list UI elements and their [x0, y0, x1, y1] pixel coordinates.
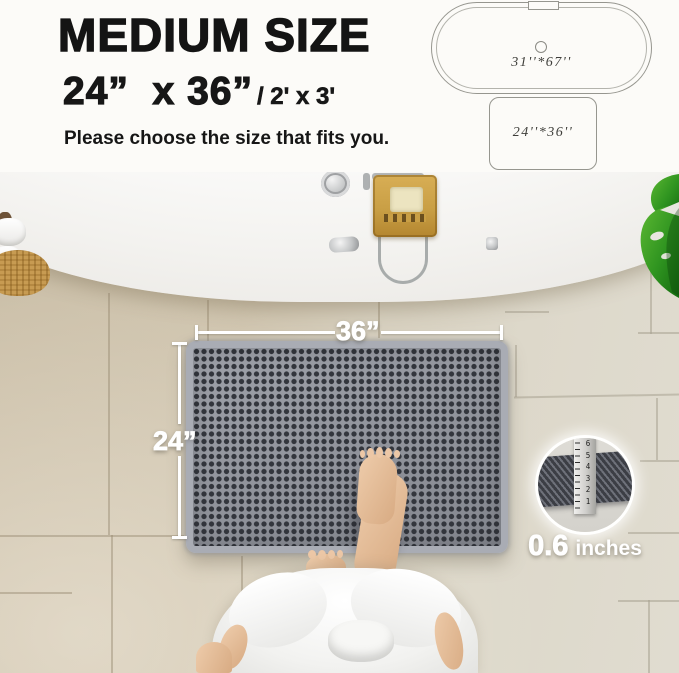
tile-grout-line — [505, 311, 549, 313]
width-dimension-cap — [195, 325, 198, 340]
ruler-number: 2 — [582, 484, 594, 496]
bathtub-diagram-icon: 31''*67'' — [431, 2, 652, 94]
caddy-slats — [384, 214, 426, 222]
bath-mat — [186, 341, 508, 553]
tile-grout-line — [207, 300, 209, 342]
size-row: 24” x 36” / 2' x 3' — [63, 70, 335, 114]
second-foot-toes — [308, 550, 346, 560]
toe — [308, 550, 316, 559]
tile-grout-line — [0, 535, 184, 537]
monstera-leaf-icon — [626, 172, 679, 312]
caddy-wire-handle — [378, 236, 428, 284]
toe — [367, 448, 373, 458]
tile-grout-line — [638, 332, 679, 334]
height-dimension-line — [178, 344, 181, 424]
chrome-fitting — [486, 237, 498, 250]
mat-size-label: 24''*36'' — [490, 125, 596, 141]
width-dimension-label: 36” — [336, 316, 380, 347]
bathtub-faucet-notch — [528, 1, 559, 10]
header-section: MEDIUM SIZE 24” x 36” / 2' x 3' Please c… — [0, 0, 679, 172]
bathtub-size-label: 31''*67'' — [432, 55, 651, 71]
soap-bar — [390, 187, 423, 212]
tile-grout-line — [108, 293, 110, 535]
foot — [356, 453, 399, 525]
left-knee — [196, 642, 232, 673]
toe — [318, 550, 326, 560]
size-secondary: / 2' x 3' — [257, 83, 335, 111]
bathrobe-belt-knot — [328, 620, 394, 662]
toes — [360, 446, 400, 458]
bamboo-bath-caddy — [373, 175, 437, 237]
width-dimension-line — [197, 331, 335, 334]
tile-grout-line — [648, 600, 650, 673]
product-image: MEDIUM SIZE 24” x 36” / 2' x 3' Please c… — [0, 0, 679, 673]
toe — [360, 450, 365, 458]
toe — [328, 550, 335, 559]
width-dimension-line — [381, 331, 502, 334]
ruler-number: 6 — [582, 438, 594, 450]
bathtub-drain-icon — [535, 41, 547, 53]
mat-diagram-icon: 24''*36'' — [489, 97, 597, 170]
faucet-handle-icon — [329, 236, 360, 253]
ruler-number: 3 — [582, 473, 594, 485]
tile-grout-line — [656, 398, 658, 460]
tile-grout-line — [0, 592, 72, 594]
size-subtitle: Please choose the size that fits you. — [64, 128, 389, 150]
ruler-number: 4 — [582, 461, 594, 473]
toe — [385, 448, 392, 458]
height-dimension-cap — [172, 536, 187, 539]
toe — [337, 550, 343, 558]
thickness-ruler-icon: 6 5 4 3 2 1 — [574, 438, 596, 514]
size-primary: 24” x 36” — [63, 70, 253, 114]
caddy-chrome-pin — [363, 173, 370, 190]
tile-grout-line — [111, 535, 113, 673]
towel-roll — [0, 218, 26, 246]
thickness-label: 0.6 inches — [520, 530, 650, 563]
height-dimension-label: 24” — [153, 426, 197, 457]
toe — [394, 450, 400, 458]
height-dimension-line — [178, 456, 181, 538]
tile-grout-line — [640, 460, 679, 462]
ruler-numbers: 6 5 4 3 2 1 — [582, 438, 594, 507]
toe — [376, 447, 383, 458]
height-dimension-cap — [172, 342, 187, 345]
tile-grout-line — [515, 345, 517, 397]
page-title: MEDIUM SIZE — [58, 10, 371, 61]
thickness-value: 0.6 — [528, 530, 568, 563]
thickness-unit: inches — [575, 537, 642, 561]
thickness-inset-circle: 6 5 4 3 2 1 — [538, 438, 632, 532]
ruler-number: 1 — [582, 496, 594, 508]
ruler-ticks — [575, 438, 580, 514]
ruler-number: 5 — [582, 450, 594, 462]
photo-section: 36” 24” — [0, 172, 679, 673]
width-dimension-cap — [500, 325, 503, 340]
